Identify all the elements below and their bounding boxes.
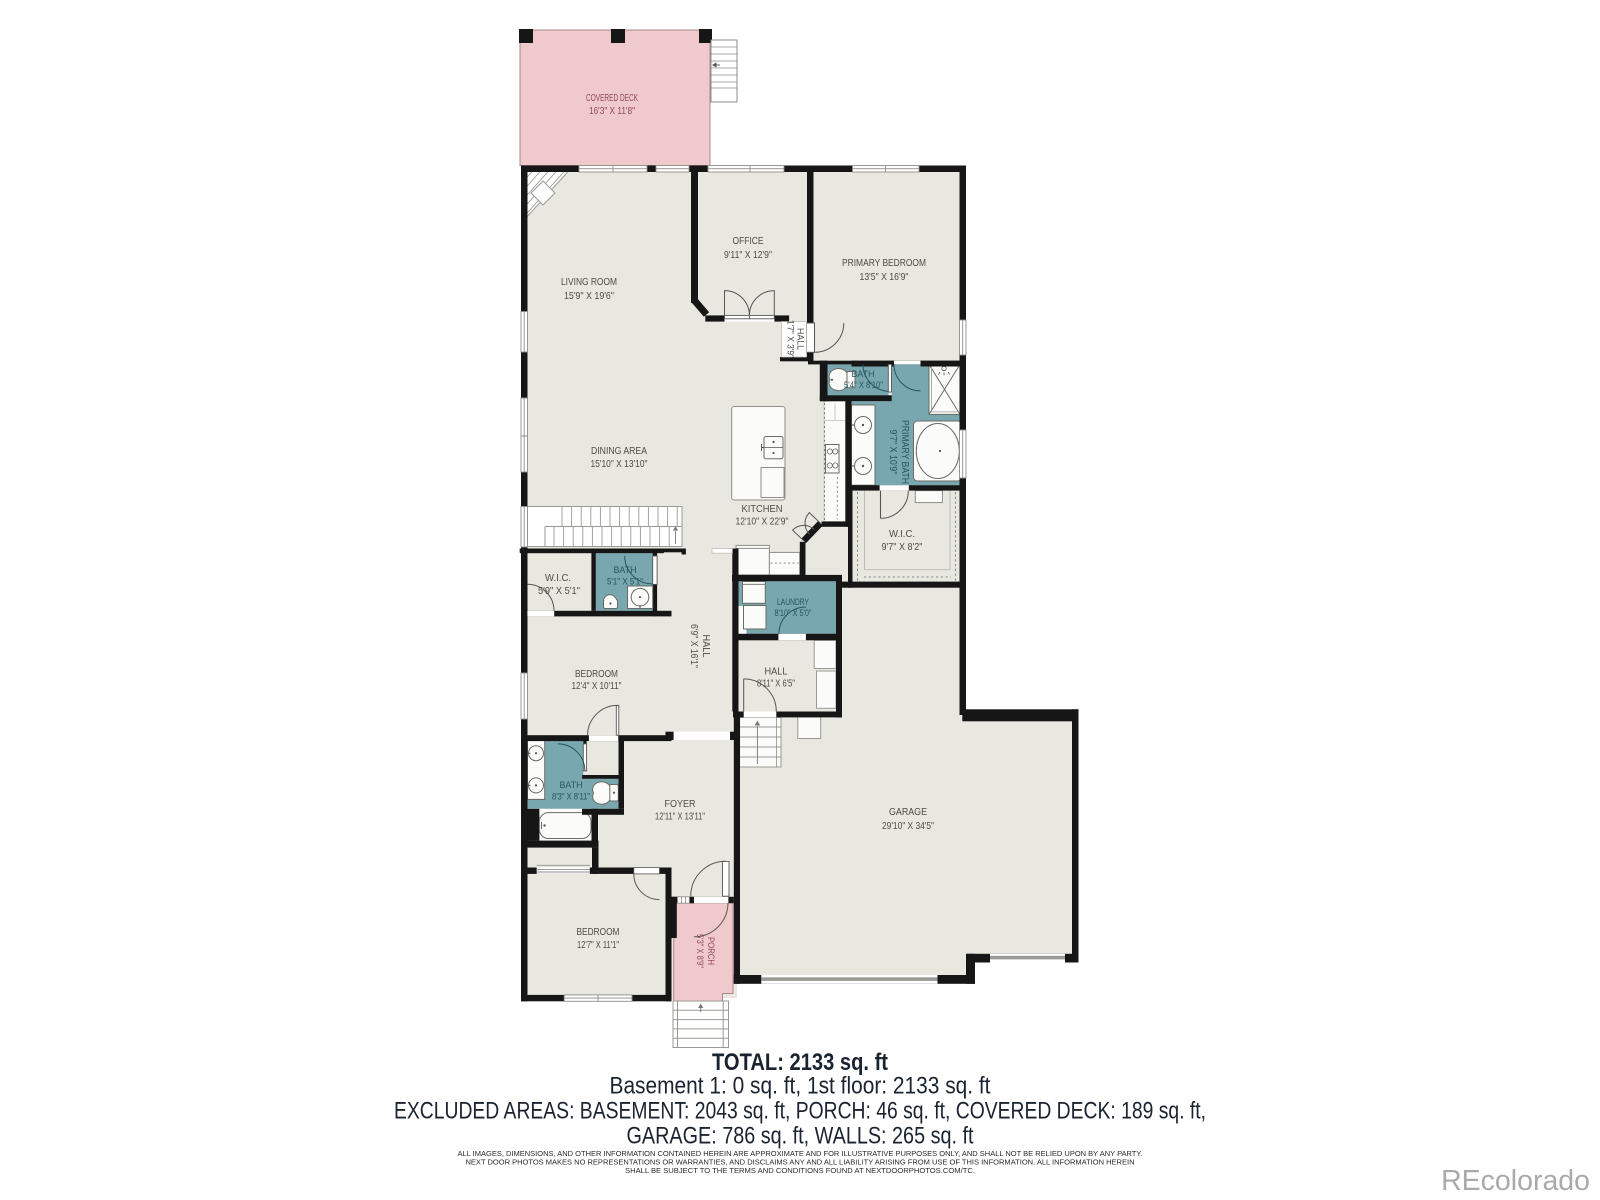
svg-text:29'10" X 34'5": 29'10" X 34'5" — [882, 820, 934, 832]
svg-text:SHALL BE SUBJECT TO THE TERMS: SHALL BE SUBJECT TO THE TERMS AND CONDIT… — [625, 1166, 975, 1175]
svg-text:BATH: BATH — [560, 780, 583, 791]
svg-text:FOYER: FOYER — [665, 798, 696, 810]
svg-text:6'9" X 16'1": 6'9" X 16'1" — [688, 624, 699, 668]
svg-text:GARAGE: GARAGE — [889, 806, 927, 818]
svg-text:EXCLUDED AREAS: BASEMENT: 2043: EXCLUDED AREAS: BASEMENT: 2043 sq. ft, P… — [394, 1098, 1206, 1125]
svg-text:9'7" X 8'2": 9'7" X 8'2" — [882, 541, 923, 553]
svg-text:BEDROOM: BEDROOM — [575, 668, 618, 680]
svg-text:GARAGE: 786 sq. ft, WALLS: 265: GARAGE: 786 sq. ft, WALLS: 265 sq. ft — [627, 1123, 974, 1150]
svg-text:BATH: BATH — [614, 565, 637, 576]
svg-text:5'9" X 5'1": 5'9" X 5'1" — [538, 585, 580, 597]
svg-text:9'11" X 12'9": 9'11" X 12'9" — [724, 249, 772, 261]
svg-text:W.I.C.: W.I.C. — [889, 528, 915, 540]
svg-text:5'1" X 5'1": 5'1" X 5'1" — [607, 577, 643, 588]
svg-text:8'11" X 6'5": 8'11" X 6'5" — [757, 679, 795, 690]
svg-text:Basement 1: 0 sq. ft, 1st floo: Basement 1: 0 sq. ft, 1st floor: 2133 sq… — [610, 1073, 991, 1100]
svg-text:LIVING ROOM: LIVING ROOM — [561, 276, 617, 288]
svg-text:COVERED DECK: COVERED DECK — [586, 92, 638, 104]
svg-text:1'7" X 3'9": 1'7" X 3'9" — [786, 320, 796, 358]
svg-text:5'4" X 8'10": 5'4" X 8'10" — [844, 380, 883, 391]
svg-text:W.I.C.: W.I.C. — [545, 572, 571, 584]
svg-text:HALL: HALL — [796, 328, 806, 350]
svg-text:13'5" X 16'9": 13'5" X 16'9" — [860, 271, 909, 283]
svg-text:15'9" X 19'6": 15'9" X 19'6" — [564, 290, 614, 302]
svg-text:12'10" X 22'9": 12'10" X 22'9" — [736, 516, 789, 528]
svg-text:12'4" X 10'11": 12'4" X 10'11" — [572, 680, 622, 692]
svg-text:HALL: HALL — [765, 667, 788, 678]
svg-text:REcolorado: REcolorado — [1441, 1165, 1590, 1197]
svg-text:HALL: HALL — [700, 635, 711, 658]
svg-text:5'3" X 8'9": 5'3" X 8'9" — [694, 934, 705, 968]
svg-text:KITCHEN: KITCHEN — [742, 503, 783, 515]
svg-text:DINING AREA: DINING AREA — [591, 445, 647, 457]
svg-text:9'7" X 10'9": 9'7" X 10'9" — [887, 430, 898, 475]
svg-text:OFFICE: OFFICE — [733, 235, 764, 247]
svg-text:16'3" X 11'8": 16'3" X 11'8" — [589, 105, 635, 117]
svg-text:8'10" X 5'0": 8'10" X 5'0" — [775, 608, 812, 618]
svg-text:BATH: BATH — [852, 369, 875, 380]
svg-text:PRIMARY BEDROOM: PRIMARY BEDROOM — [842, 257, 926, 269]
svg-text:15'10" X 13'10": 15'10" X 13'10" — [591, 458, 648, 470]
svg-text:12'11" X 13'11": 12'11" X 13'11" — [655, 811, 705, 823]
svg-text:LAUNDRY: LAUNDRY — [777, 597, 809, 607]
svg-text:12'7" X 11'1": 12'7" X 11'1" — [577, 939, 619, 951]
svg-text:BEDROOM: BEDROOM — [577, 926, 620, 938]
svg-text:PORCH: PORCH — [705, 937, 716, 965]
svg-text:8'3" X 8'11": 8'3" X 8'11" — [552, 792, 590, 803]
svg-text:PRIMARY BATH: PRIMARY BATH — [899, 420, 910, 484]
